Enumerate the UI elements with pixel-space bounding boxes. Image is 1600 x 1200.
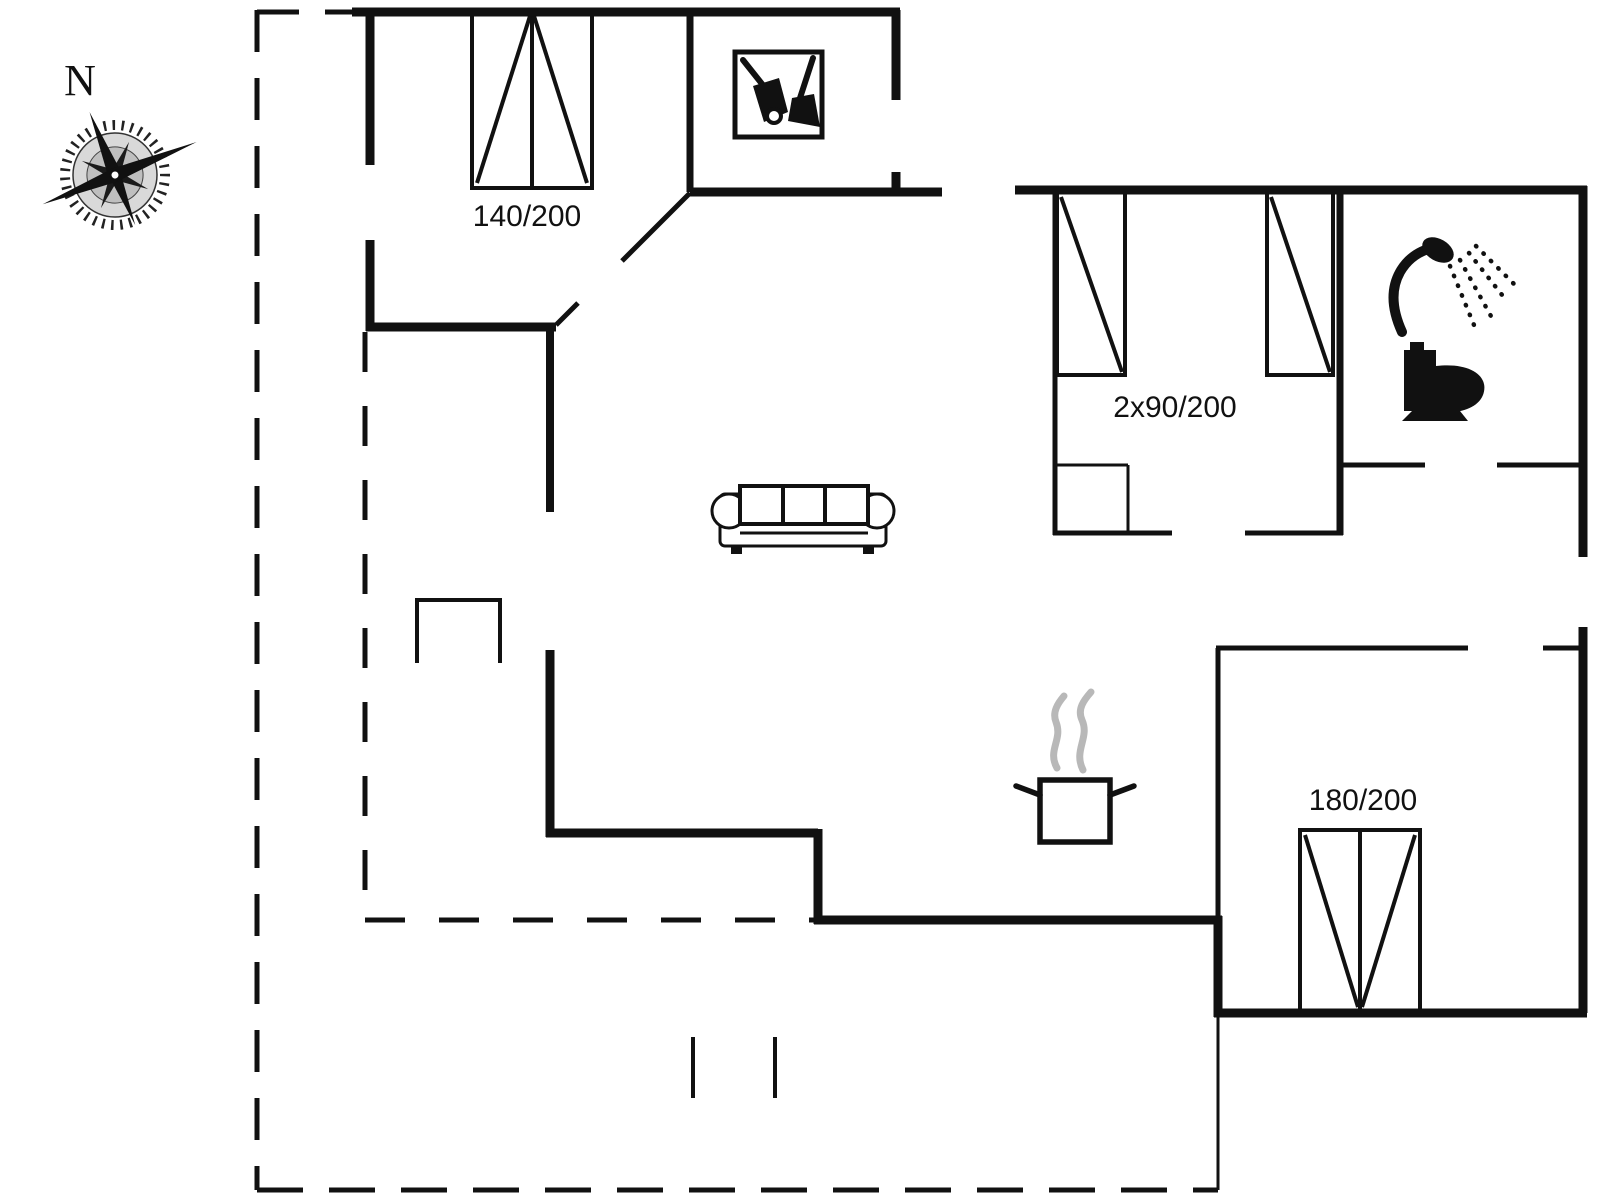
bed-180x200 (1300, 830, 1420, 1011)
floorplan-canvas: 140/200 2x90/200 180/200 (0, 0, 1600, 1200)
exterior-walls (352, 10, 1587, 1017)
compass-rose-icon (17, 79, 217, 254)
fireplace-outline (417, 600, 500, 663)
beds-2x90x200 (1057, 192, 1333, 375)
vacuum-broom-icon (735, 52, 822, 137)
compass-north-label: N (64, 56, 96, 105)
bed-140x200 (472, 12, 592, 188)
toilet-icon (1402, 342, 1484, 421)
bed-180x200-label: 180/200 (1309, 784, 1417, 817)
shower-icon (1393, 232, 1514, 332)
beds-2x90x200-label: 2x90/200 (1113, 391, 1236, 424)
sofa-topview (712, 486, 894, 554)
terrace-steps (693, 1037, 775, 1098)
cooking-pot-icon (1016, 692, 1134, 842)
bed-140x200-label: 140/200 (473, 200, 581, 233)
